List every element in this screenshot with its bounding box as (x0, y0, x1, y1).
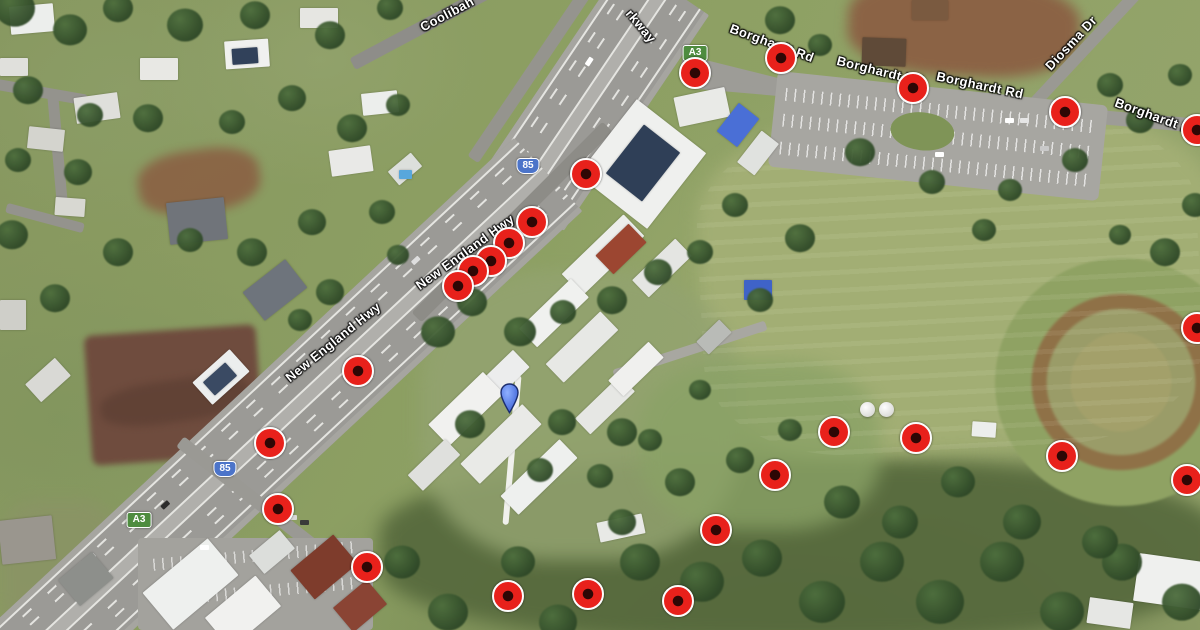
tree (1162, 584, 1200, 621)
tree (167, 8, 203, 41)
map-marker[interactable] (572, 578, 604, 610)
tree (1040, 592, 1084, 630)
tree (501, 546, 535, 577)
water-tank (860, 402, 875, 417)
parked-car (935, 152, 944, 157)
building-roof (25, 358, 71, 403)
tree (384, 545, 420, 578)
tree (278, 85, 306, 111)
tree (315, 21, 345, 49)
building-roof (0, 515, 56, 564)
tree (919, 170, 945, 194)
tree (1150, 238, 1180, 266)
tree (421, 316, 455, 347)
tree (765, 6, 795, 34)
map-marker[interactable] (1171, 464, 1200, 496)
map-marker[interactable] (700, 514, 732, 546)
tree (337, 114, 367, 142)
tree (219, 110, 245, 134)
building-roof (0, 300, 26, 330)
tree (1082, 525, 1118, 558)
map-marker[interactable] (492, 580, 524, 612)
map-marker[interactable] (570, 158, 602, 190)
building-roof (972, 421, 997, 438)
map-marker[interactable] (351, 551, 383, 583)
tree (369, 200, 395, 224)
tree (638, 429, 662, 451)
tree (1182, 193, 1200, 217)
tree (240, 1, 270, 29)
map-marker[interactable] (342, 355, 374, 387)
tree (620, 544, 660, 581)
tree (288, 309, 312, 331)
tree (455, 410, 485, 438)
tree (665, 468, 695, 496)
vehicle (585, 56, 594, 66)
tree (1097, 73, 1123, 97)
tree (527, 458, 553, 482)
tree (608, 509, 636, 535)
tree (64, 159, 92, 185)
parked-car (1040, 146, 1049, 151)
parked-car (200, 545, 209, 550)
building-roof (673, 87, 730, 127)
route-shield-85: 85 (213, 461, 236, 477)
map-marker[interactable] (442, 270, 474, 302)
tree (77, 103, 103, 127)
tree (133, 104, 163, 132)
building-roof (140, 58, 178, 80)
tree (778, 419, 802, 441)
tree (644, 259, 672, 285)
map-marker[interactable] (1046, 440, 1078, 472)
tree (177, 228, 203, 252)
tree (785, 224, 815, 252)
tree (799, 581, 845, 623)
tree (103, 238, 133, 266)
map-marker[interactable] (1181, 114, 1200, 146)
route-shield-a3: A3 (127, 512, 152, 528)
tree (722, 193, 748, 217)
tree (882, 505, 918, 538)
tree (237, 238, 267, 266)
tree (1168, 64, 1192, 86)
tree (845, 138, 875, 166)
tree (316, 279, 344, 305)
tree (972, 219, 996, 241)
vehicle (411, 256, 421, 266)
building-roof (0, 58, 28, 76)
tree (824, 485, 860, 518)
tree (607, 418, 637, 446)
satellite-map[interactable]: CoolibahrkwayBorghardt RdBorghardt RdBor… (0, 0, 1200, 630)
building-roof (388, 152, 423, 185)
building-roof (328, 145, 373, 177)
map-marker[interactable] (679, 57, 711, 89)
tree (747, 288, 773, 312)
tree (1003, 505, 1041, 540)
tree (941, 466, 975, 497)
water-tank (879, 402, 894, 417)
building-roof (399, 170, 412, 179)
map-marker[interactable] (818, 416, 850, 448)
tree (548, 409, 576, 435)
tree (377, 0, 403, 20)
tree (386, 94, 410, 116)
tree (53, 14, 87, 45)
tree (687, 240, 713, 264)
map-marker[interactable] (1049, 96, 1081, 128)
tree (5, 148, 31, 172)
location-pin-icon[interactable] (500, 383, 519, 414)
road-label: Coolibah (418, 0, 477, 34)
map-marker[interactable] (254, 427, 286, 459)
parked-car (300, 520, 309, 525)
tree (428, 594, 468, 630)
tree (597, 286, 627, 314)
map-marker[interactable] (765, 42, 797, 74)
tree (13, 76, 43, 104)
route-shield-85: 85 (516, 158, 539, 174)
building-roof (27, 126, 65, 152)
map-marker[interactable] (662, 585, 694, 617)
building-roof (54, 197, 85, 217)
tree (916, 580, 964, 624)
tree (742, 540, 782, 577)
map-marker[interactable] (759, 459, 791, 491)
map-marker[interactable] (262, 493, 294, 525)
tree (0, 220, 28, 249)
tree (103, 0, 133, 22)
tree (998, 179, 1022, 201)
parked-car (1020, 118, 1029, 123)
tree (550, 300, 576, 324)
building-roof (231, 47, 258, 65)
tree (726, 447, 754, 473)
building-roof (912, 0, 948, 20)
tree (40, 284, 70, 312)
map-marker[interactable] (900, 422, 932, 454)
map-marker[interactable] (897, 72, 929, 104)
tree (1062, 148, 1088, 172)
tree (587, 464, 613, 488)
tree (298, 209, 326, 235)
parked-car (1005, 118, 1014, 123)
road-surface (349, 0, 514, 70)
